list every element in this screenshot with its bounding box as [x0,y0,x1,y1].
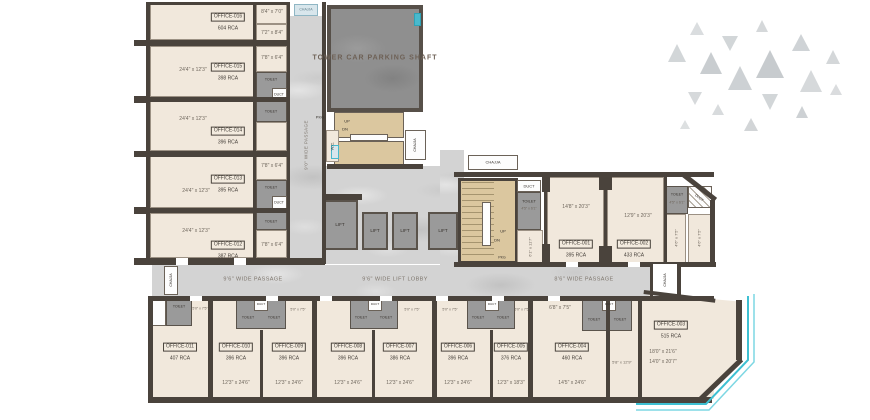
office-dim: 12'3" x 18'3" [497,380,524,387]
parking-shaft-label: TOWER CAR PARKING SHAFT [312,53,437,62]
office-004-labels: OFFICE-004460 RCA [555,334,589,363]
watermark-triangle [690,22,704,35]
cluster-dim: 5'0" x 7'5" [192,307,207,312]
floor-plan: OFFICE-016604 RCA OFFICE-015398 RCA 24'4… [0,0,870,420]
watermark-triangle [826,50,840,64]
office-rca: 433 RCA [617,251,651,259]
office-label: OFFICE-001 [559,240,593,249]
toilet-label: TOILET [588,318,600,323]
wall [146,208,288,213]
cluster-dim: 5'0" x 7'5" [514,308,529,313]
office-007-labels: OFFICE-007386 RCA [383,334,417,363]
watermark-triangle [796,106,808,118]
lift-label: LIFT [438,228,447,234]
room-dim: 7'8" x 6'4" [261,163,283,170]
wall [312,299,317,399]
wall [542,244,550,264]
watermark-triangle [680,120,690,129]
wall [599,246,612,264]
toilet-label: TOILET [497,316,509,321]
parking-notch [414,13,421,26]
office-dim: 24'4" x 12'3" [179,67,206,74]
office-dim: 12'3" x 24'6" [334,380,361,387]
office-rca: 407 RCA [163,354,197,362]
wall [327,164,423,169]
duct-label: DUCT [274,201,284,206]
office-dim: 12'3" x 24'6" [386,380,413,387]
wall [372,330,375,399]
watermark-triangle [728,66,752,90]
office-label: OFFICE-011 [163,343,197,352]
toilet-label: TOILET [671,193,683,198]
office-dim: 18'0" x 21'6" [649,349,676,356]
room-dim: 4'6" x 7'5" [674,229,679,247]
office-rca: 396 RCA [331,354,365,362]
wall [134,40,290,46]
watermark-triangle [830,84,842,95]
small-room [256,122,287,151]
office-label: OFFICE-006 [441,343,475,352]
pkg-label: PKG [316,114,324,119]
office-dim: 12'9" x 20'3" [624,213,651,220]
wall [322,194,362,200]
office-dim: 24'4" x 12'3" [182,228,209,235]
cluster-dim: 5'0" x 7'5" [442,308,457,313]
office-label: OFFICE-010 [219,343,253,352]
up-label: UP [500,228,506,233]
duct-label: DUCT [257,303,265,307]
wall [677,264,681,296]
wall [710,200,715,264]
office-016-labels: OFFICE-016604 RCA [211,4,245,33]
wc-label: W.C. [330,142,335,151]
room-dim: 4'6" x 7'5" [697,229,702,247]
cluster-dim: 5'0" x 7'5" [404,308,419,313]
office-label: OFFICE-005 [494,343,528,352]
office-013-labels: OFFICE-013395 RCA [211,166,245,195]
office-009-labels: OFFICE-009396 RCA [272,334,306,363]
office-004-side-dim: 6'8" x 7'5" [549,305,571,312]
office-label: OFFICE-016 [211,13,245,22]
watermark-triangle [762,94,778,110]
office-014-labels: OFFICE-014396 RCA [211,118,245,147]
office-label: OFFICE-002 [617,240,651,249]
wall [148,296,153,403]
office-rca: 396 RCA [272,354,306,362]
office-label: OFFICE-014 [211,127,245,136]
watermark-triangle [700,52,722,74]
watermark-triangle [756,50,784,78]
door-gap [566,262,578,267]
wall [260,330,263,399]
toilet-dim: 4'5" x 6'1" [521,207,536,212]
duct-label: DUCT [523,183,534,188]
room-office-003 [642,294,738,400]
dn-label: DN [342,126,348,131]
toilet-label: TOILET [265,186,277,191]
door-gap [436,296,448,301]
wall [664,176,667,264]
door-gap [548,296,560,301]
chajja-label: CHAJJA [169,273,173,286]
door-gap [320,296,332,301]
watermark-triangle [792,34,810,51]
door-gap [190,296,202,301]
office-rca: 515 RCA [654,332,688,340]
watermark-triangle [756,20,768,32]
chajja-label: CHAJJA [299,8,312,13]
office-011-labels: OFFICE-011407 RCA [163,334,197,363]
room-dim: 8'4" x 7'0" [261,9,283,16]
wall [148,296,714,301]
toilet-label: TOILET [268,316,280,321]
office-rca: 396 RCA [441,354,475,362]
office-002-labels: OFFICE-002433 RCA [617,231,651,260]
room-dim: 6'1" x 11'7" [528,237,533,256]
duct-label: DUCT [274,93,284,98]
between-004-003-dim: 5'8" x 12'9" [612,359,632,364]
wall [454,172,714,177]
watermark-triangle [722,36,738,51]
watermark-triangle [744,118,758,131]
passage-label: 9'6" WIDE PASSAGE [223,276,282,283]
wall [528,299,533,399]
toilet-label: TOILET [614,318,626,323]
stair-landing [350,134,388,141]
dn-label: DN [494,237,500,242]
office-label: OFFICE-013 [211,175,245,184]
door-gap [492,296,504,301]
room-dim: 7'2" x 8'4" [261,30,283,37]
office-rca: 398 RCA [211,74,245,82]
duct-label: DUCT [371,303,379,307]
office-rca: 387 RCA [211,252,245,260]
toilet-dim: 4'5" x 6'1" [669,201,684,206]
chajja-label: CHAJJA [413,138,417,151]
office-rca: 460 RCA [555,354,589,362]
cluster-dim: 5'0" x 7'5" [290,308,305,313]
passage-label: 8'6" WIDE PASSAGE [554,276,613,283]
wall [148,397,712,403]
wall [638,299,642,399]
office-003-labels: OFFICE-003515 RCA [654,312,688,341]
office-rca: 604 RCA [211,24,245,32]
wall [599,172,612,190]
toilet-label: TOILET [242,316,254,321]
chajja-label: CHAJJA [485,159,500,164]
office-label: OFFICE-012 [211,241,245,250]
toilet-label: TOILET [265,110,277,115]
office-dim: 12'3" x 24'6" [275,380,302,387]
wall [736,300,742,360]
office-rca: 386 RCA [383,354,417,362]
office-015-labels: OFFICE-015398 RCA [211,54,245,83]
office-rca: 395 RCA [559,251,593,259]
watermark-triangle [688,92,702,105]
office-label: OFFICE-003 [654,321,688,330]
wall [134,207,148,214]
office-label: OFFICE-007 [383,343,417,352]
wall [606,299,610,399]
office-rca: 396 RCA [219,354,253,362]
pkg-label: PKG [498,256,505,261]
up-label: UP [344,118,350,123]
door-gap [380,296,392,301]
lift-label: LIFT [370,228,379,234]
duct-label: DUCT [488,303,496,307]
watermark-triangle [712,104,724,115]
door-gap [266,296,278,301]
wc-room [152,300,166,326]
office-label: OFFICE-015 [211,63,245,72]
office-label: OFFICE-004 [555,343,589,352]
office-dim2: 14'0" x 20'7" [649,359,676,366]
office-dim: 14'5" x 24'6" [558,380,585,387]
toilet-label: TOILET [522,198,536,203]
toilet-label: TOILET [472,316,484,321]
wall [134,96,148,103]
lift-label: LIFT [335,222,344,228]
office-dim: 12'3" x 24'6" [222,380,249,387]
door-gap [176,258,188,265]
wall [432,299,437,399]
wall [322,2,326,264]
duct-label: DUCT [605,303,613,307]
office-label: OFFICE-008 [331,343,365,352]
wall [208,299,213,399]
wall [542,172,550,192]
office-dim: 14'8" x 20'3" [562,204,589,211]
office-rca: 396 RCA [211,138,245,146]
office-006-labels: OFFICE-006396 RCA [441,334,475,363]
wall [134,151,290,157]
toilet-label: TOILET [173,305,185,310]
toilet-label: TOILET [355,316,367,321]
office-dim: 12'3" x 24'6" [444,380,471,387]
watermark-triangle [800,70,822,92]
office-008-labels: OFFICE-008396 RCA [331,334,365,363]
office-005-labels: OFFICE-005376 RCA [494,334,528,363]
room-dim: 7'8" x 6'4" [261,55,283,62]
office-001-labels: OFFICE-001395 RCA [559,231,593,260]
door-gap [628,262,640,267]
office-rca: 395 RCA [211,186,245,194]
office-010-labels: OFFICE-010396 RCA [219,334,253,363]
toilet-label: TOILET [380,316,392,321]
office-012-labels: OFFICE-012387 RCA [211,232,245,261]
lift-lobby-label: 9'6" WIDE LIFT LOBBY [362,276,428,283]
chajja-label: CHAJJA [663,273,667,286]
lift-label: LIFT [400,228,409,234]
room-dim: 7'8" x 6'4" [261,242,283,249]
toilet-label: TOILET [265,78,277,83]
toilet-label: TOILET [265,220,277,225]
office-label: OFFICE-009 [272,343,306,352]
watermark-triangle [668,44,686,62]
wall [490,330,493,399]
vertical-passage-label: 9'0" WIDE PASSAGE [304,120,309,170]
wall [146,97,288,102]
stair-flight [334,141,404,166]
office-dim: 24'4" x 12'3" [182,188,209,195]
stair-landing [482,202,491,246]
office-rca: 376 RCA [494,354,528,362]
office-dim: 24'4" x 12'3" [179,116,206,123]
